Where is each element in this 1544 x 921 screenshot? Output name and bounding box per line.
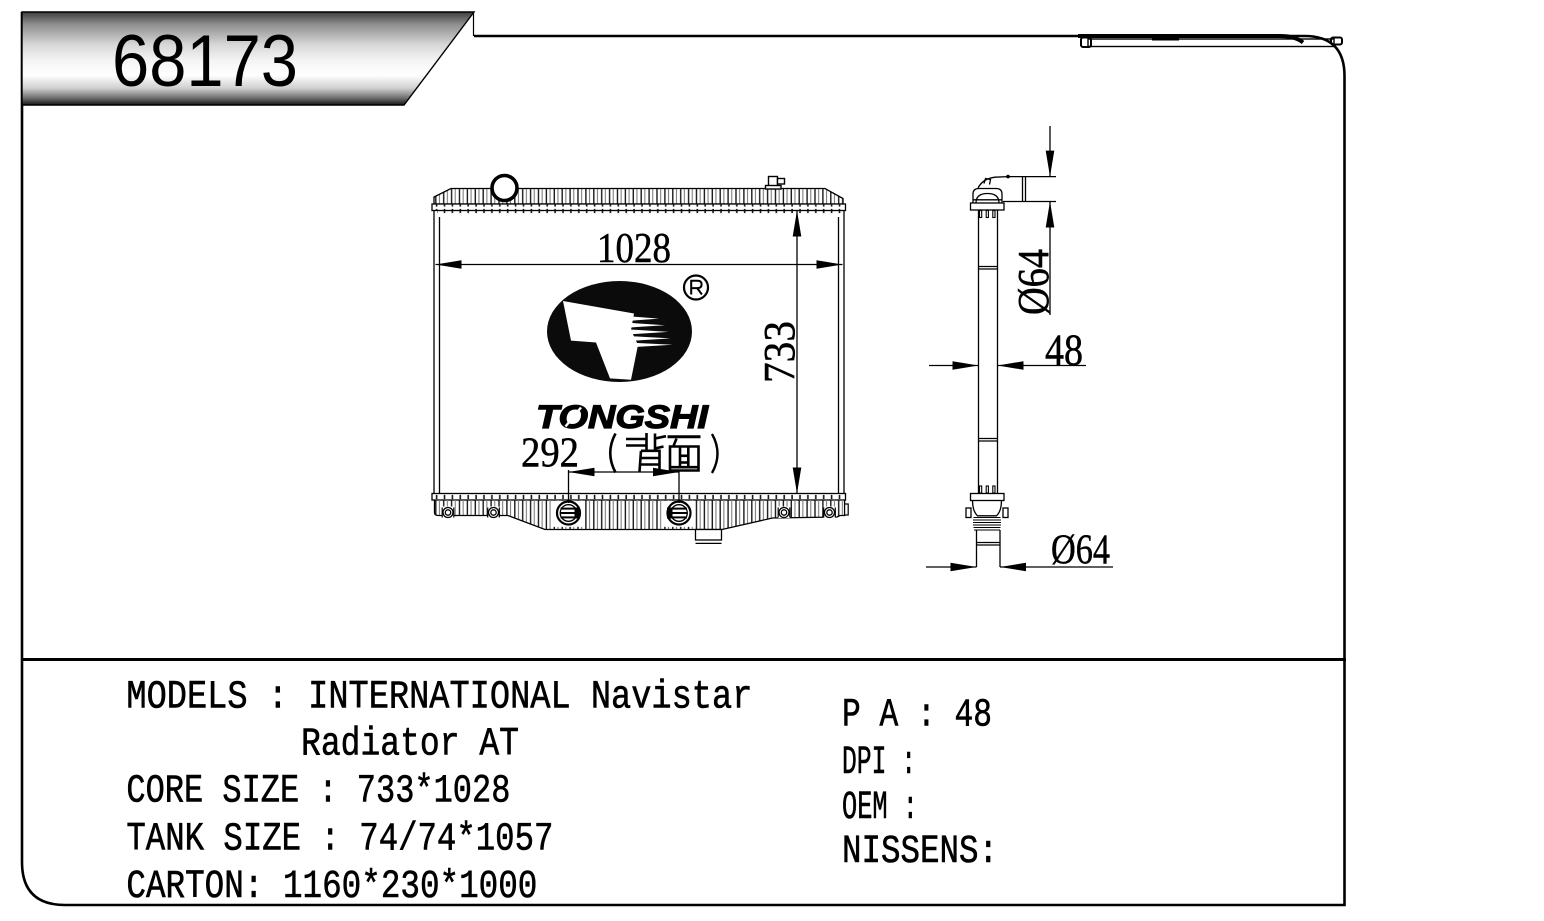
svg-text:292: 292 [521,431,579,477]
svg-text:68173: 68173 [112,21,298,102]
svg-text:CARTON: 1160*230*1000: CARTON: 1160*230*1000 [126,865,537,910]
svg-text:1028: 1028 [597,226,671,272]
svg-text:48: 48 [1045,326,1083,375]
svg-text:Ø64: Ø64 [1009,249,1058,315]
svg-text:TANK SIZE : 74/74*1057: TANK SIZE : 74/74*1057 [126,818,553,863]
svg-text:733: 733 [755,321,804,383]
svg-text:DPI :: DPI : [842,741,916,786]
svg-text:Ø64: Ø64 [1051,528,1110,574]
svg-text:Radiator AT: Radiator AT [301,723,519,768]
svg-text:P A : 48: P A : 48 [842,694,992,739]
svg-text:MODELS : INTERNATIONAL Navist: MODELS : INTERNATIONAL Navistar [126,676,752,721]
svg-text:CORE SIZE : 733*1028: CORE SIZE : 733*1028 [126,770,510,815]
svg-text:OEM :: OEM : [842,786,918,831]
svg-text:NISSENS:: NISSENS: [842,830,998,875]
